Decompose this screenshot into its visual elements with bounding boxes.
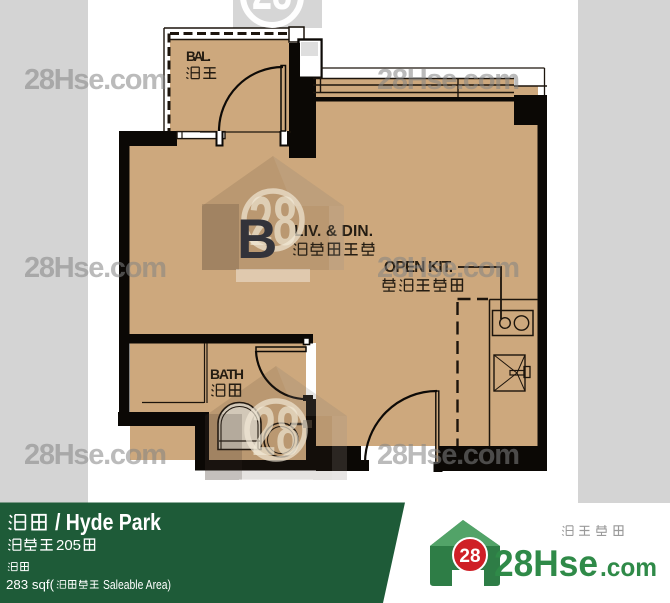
svg-text:28: 28 bbox=[459, 546, 480, 567]
svg-text:28: 28 bbox=[252, 0, 292, 21]
svg-text:BATH: BATH bbox=[210, 366, 244, 382]
svg-text:28Hse.com: 28Hse.com bbox=[24, 64, 167, 96]
svg-text:28Hse.com: 28Hse.com bbox=[24, 439, 167, 471]
svg-text:28Hse.com: 28Hse.com bbox=[377, 439, 520, 471]
svg-text:BAL.: BAL. bbox=[186, 49, 211, 64]
svg-text:B: B bbox=[237, 207, 277, 270]
svg-text:283 sqf(: 283 sqf( bbox=[6, 577, 55, 592]
svg-text:Saleable Area): Saleable Area) bbox=[103, 577, 171, 592]
svg-text:205: 205 bbox=[56, 537, 81, 554]
svg-text:28Hse: 28Hse bbox=[494, 543, 598, 584]
svg-text:/ Hyde Park: / Hyde Park bbox=[55, 509, 161, 535]
svg-text:28Hse.com: 28Hse.com bbox=[377, 252, 520, 284]
svg-text:28Hse.com: 28Hse.com bbox=[24, 252, 167, 284]
svg-text:.com: .com bbox=[600, 552, 657, 582]
svg-text:28Hse.com: 28Hse.com bbox=[377, 64, 520, 96]
